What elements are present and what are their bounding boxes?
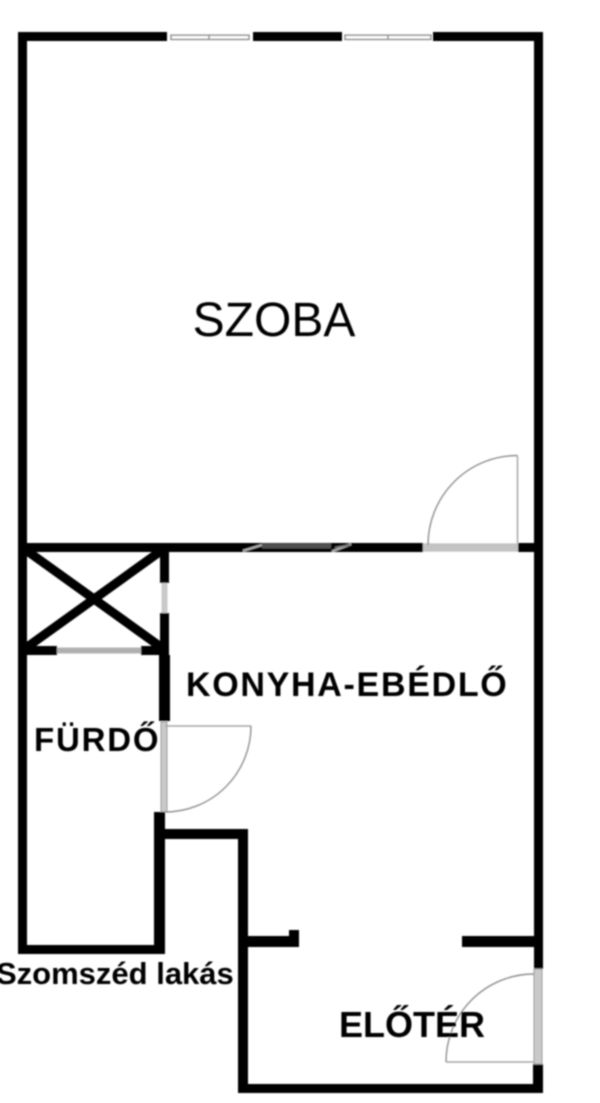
svg-text:ELŐTÉR: ELŐTÉR	[339, 1003, 485, 1045]
svg-text:Szomszéd lakás: Szomszéd lakás	[0, 956, 234, 991]
svg-text:KONYHA-EBÉDLŐ: KONYHA-EBÉDLŐ	[186, 666, 508, 704]
svg-text:SZOBA: SZOBA	[193, 294, 356, 347]
svg-text:FÜRDŐ: FÜRDŐ	[34, 721, 160, 758]
